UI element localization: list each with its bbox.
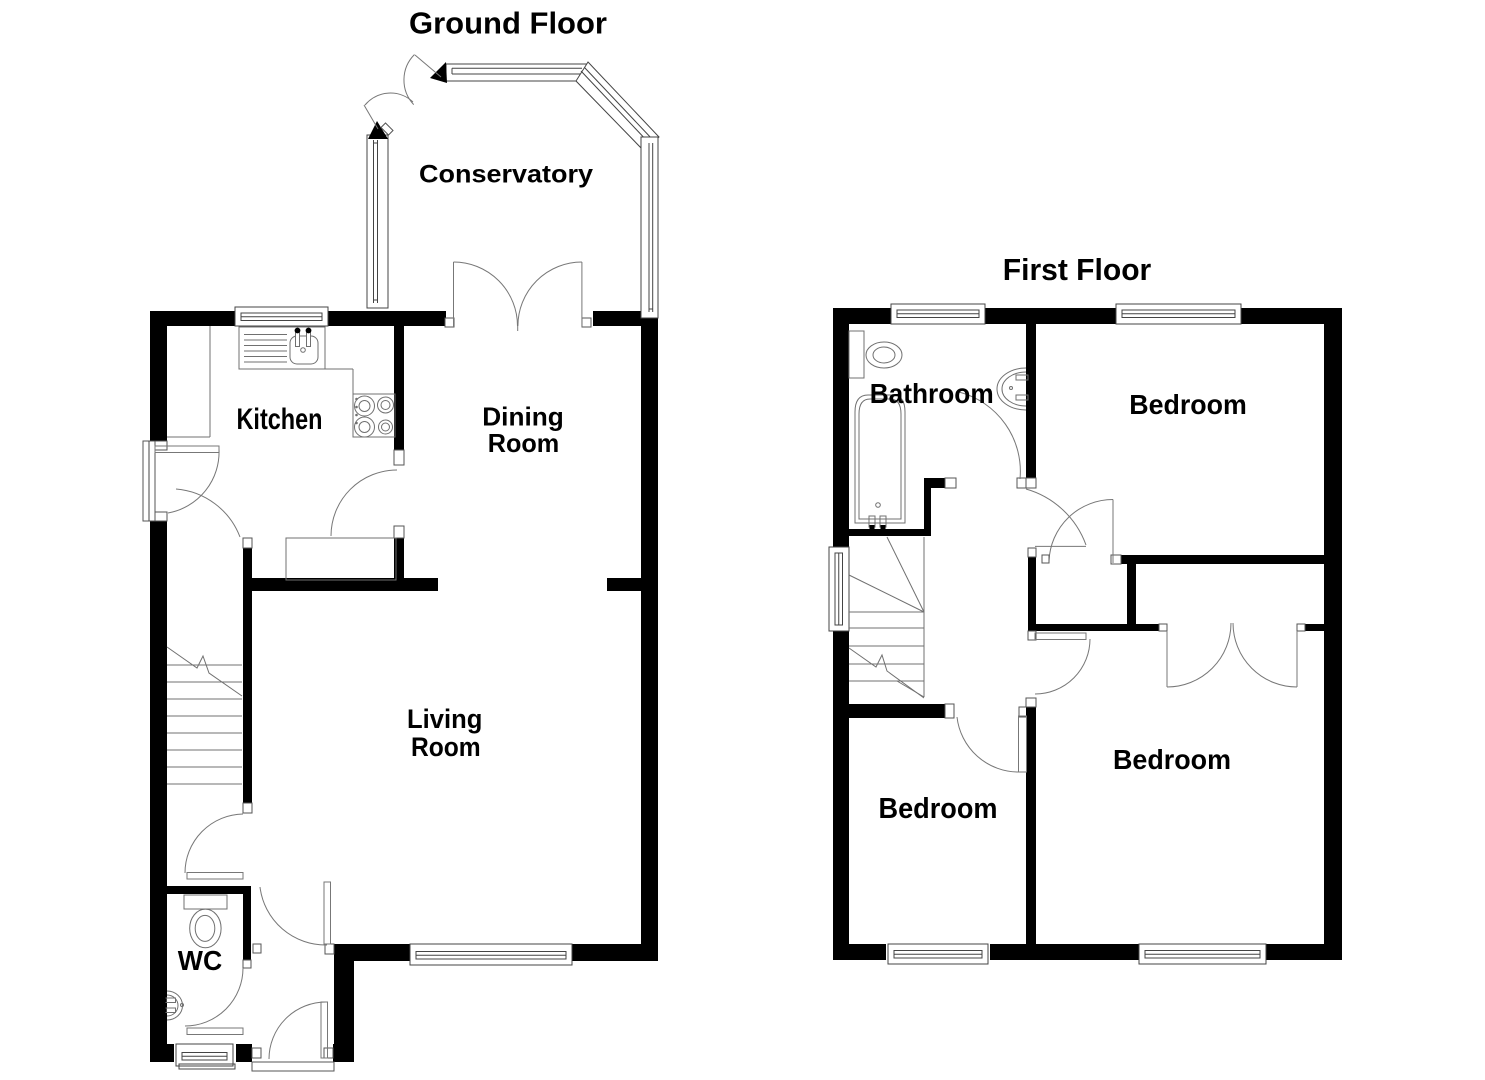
svg-text:Bathroom: Bathroom [870, 378, 994, 409]
svg-text:Room: Room [488, 428, 560, 458]
svg-text:Room: Room [411, 732, 481, 762]
svg-text:Bedroom: Bedroom [1129, 389, 1247, 420]
svg-text:Kitchen: Kitchen [237, 403, 323, 436]
svg-text:Dining: Dining [482, 402, 564, 432]
svg-text:Conservatory: Conservatory [419, 161, 593, 189]
svg-text:Bedroom: Bedroom [1113, 744, 1231, 775]
svg-text:Ground Floor: Ground Floor [409, 6, 607, 41]
svg-text:WC: WC [178, 945, 222, 976]
svg-text:First Floor: First Floor [1003, 252, 1152, 287]
svg-text:Living: Living [407, 704, 482, 734]
svg-text:Bedroom: Bedroom [879, 793, 998, 825]
